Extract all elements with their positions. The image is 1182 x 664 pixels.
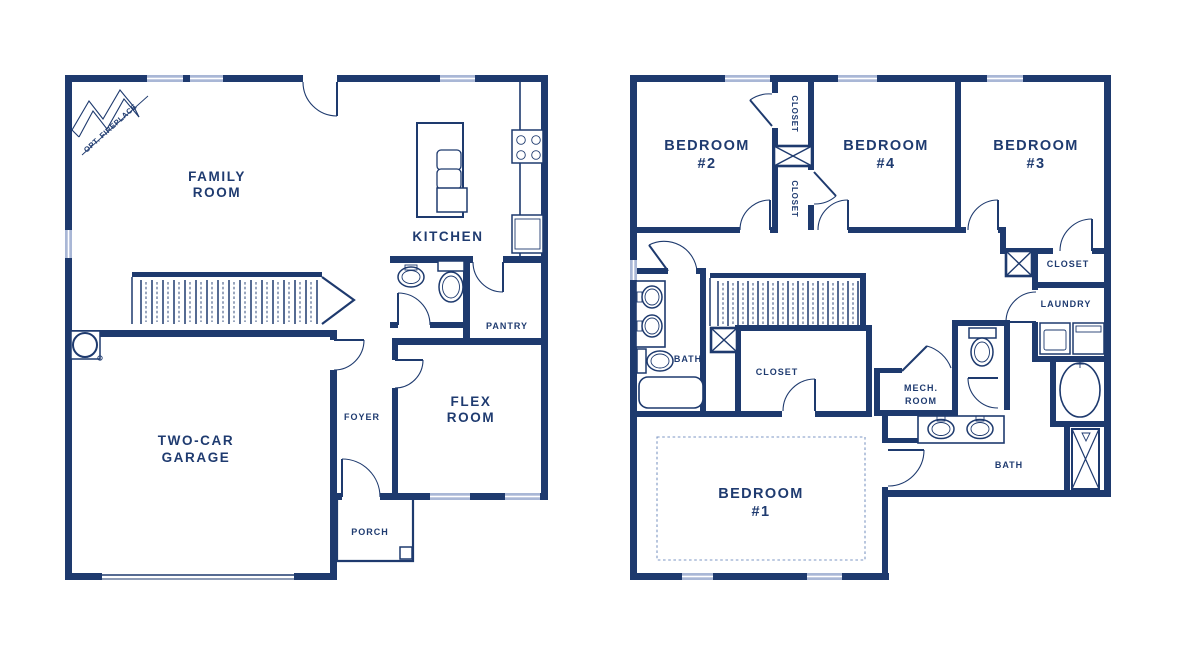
floor-plan-image: OPT. FIREPLACE FAMILY ROOM KITCHEN PANTR… — [0, 0, 1182, 664]
closet-upper-label: CLOSET — [790, 95, 799, 132]
garage-door — [102, 575, 294, 579]
closet-br3-label: CLOSET — [1047, 259, 1090, 269]
bedroom3-label: BEDROOM — [993, 138, 1079, 154]
washer — [1040, 323, 1070, 354]
powder-toilet — [438, 261, 464, 302]
bedroom4-label-2: #4 — [877, 156, 896, 172]
kitchen-island — [417, 123, 467, 217]
first-floor-plan: OPT. FIREPLACE FAMILY ROOM KITCHEN PANTR… — [65, 75, 548, 580]
second-floor-plan: BEDROOM #2 BEDROOM #4 BEDROOM #3 CLOSET … — [630, 75, 1111, 580]
master-bathtub — [1060, 360, 1100, 417]
stairs-direction-arrow — [322, 277, 354, 324]
refrigerator — [512, 215, 543, 253]
powder-sink — [398, 265, 424, 287]
closet-lower-label: CLOSET — [790, 180, 799, 217]
master-bath-label: BATH — [995, 460, 1023, 470]
bedroom1-label-2: #1 — [752, 504, 771, 520]
water-heater — [71, 331, 102, 360]
opt-fireplace-label: OPT. FIREPLACE — [82, 102, 139, 154]
family-room-label-2: ROOM — [193, 185, 241, 200]
master-closet-label: CLOSET — [756, 367, 799, 377]
pantry-label: PANTRY — [486, 321, 528, 331]
bedroom2-label: BEDROOM — [664, 138, 750, 154]
mech-room-label-2: ROOM — [905, 396, 937, 406]
family-room-label: FAMILY — [188, 169, 246, 184]
bedroom4-label: BEDROOM — [843, 138, 929, 154]
water-closet-toilet — [969, 328, 996, 366]
hall-bath-label: BATH — [674, 354, 702, 364]
kitchen-label: KITCHEN — [412, 229, 483, 244]
garage-label-2: GARAGE — [162, 450, 231, 465]
master-vanity — [918, 416, 1004, 443]
stairs-second-floor — [710, 273, 860, 326]
hall-bathtub — [639, 377, 703, 408]
bedroom1-label: BEDROOM — [718, 486, 804, 502]
bedroom2-label-2: #2 — [698, 156, 717, 172]
floor-plan-canvas: OPT. FIREPLACE FAMILY ROOM KITCHEN PANTR… — [0, 0, 1182, 664]
mech-room-label: MECH. — [904, 383, 938, 393]
flex-room-label-2: ROOM — [447, 410, 495, 425]
dryer — [1073, 323, 1104, 354]
island-sink — [437, 150, 461, 170]
stairs-first-floor — [132, 272, 354, 324]
porch-post — [400, 547, 412, 559]
laundry-label: LAUNDRY — [1041, 299, 1092, 309]
garage-label: TWO-CAR — [158, 433, 234, 448]
master-shower — [1072, 429, 1099, 489]
stove — [512, 130, 543, 163]
porch-label: PORCH — [351, 527, 389, 537]
first-floor-walls — [65, 75, 548, 580]
hall-bath-vanity — [636, 281, 665, 347]
bedroom3-label-2: #3 — [1027, 156, 1046, 172]
foyer-label: FOYER — [344, 412, 380, 422]
dishwasher — [437, 188, 467, 212]
hall-bath-toilet — [637, 349, 673, 373]
flex-room-label: FLEX — [451, 394, 492, 409]
